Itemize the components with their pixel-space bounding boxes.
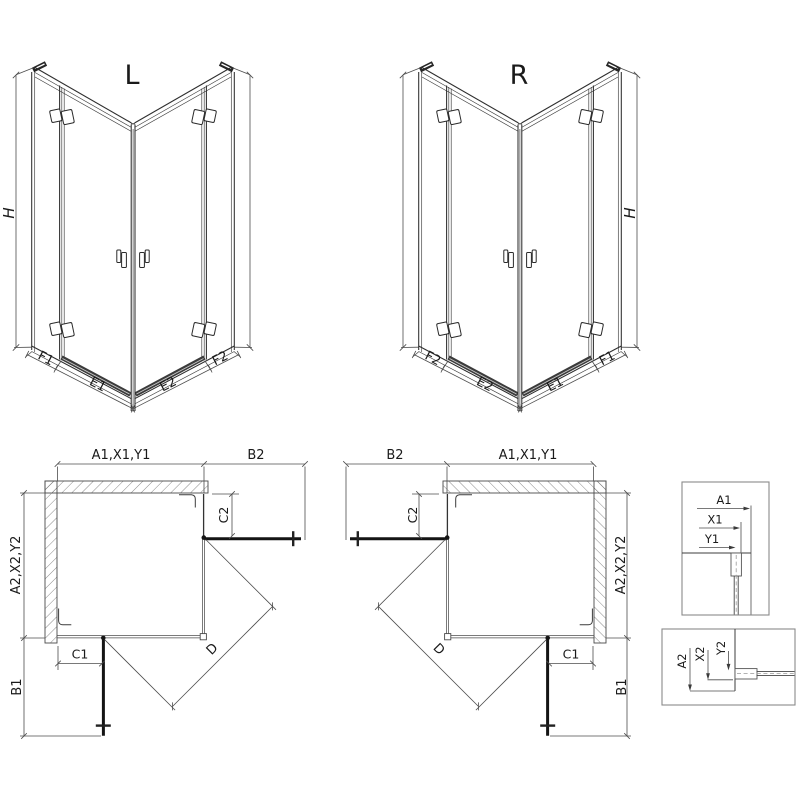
dim-label-c2-right-plan: C2	[405, 507, 420, 524]
dim-label-e2-right: E2	[474, 374, 496, 395]
dim-label-e2-left: E2	[158, 374, 180, 395]
plan-left-geometry	[20, 461, 308, 739]
dim-label-diagonal-right-plan: D	[430, 641, 448, 659]
plan-right-view: B2 A1,X1,Y1 A2,X2,Y2 B1 C2 C1 D	[343, 448, 631, 739]
variant-label-right: R	[510, 60, 529, 91]
diagram-canvas: L H F1 E1 E2 F2 R H F2 E2 E1 F1 A1,X1,Y1…	[0, 0, 800, 800]
dim-label-height-right: H	[621, 207, 639, 218]
variant-label-left: L	[124, 60, 139, 91]
dim-label-e1-left: E1	[87, 374, 109, 395]
detail-box-vertical-profile: A1 X1 Y1	[682, 482, 769, 615]
detail-dim-a1: A1	[716, 493, 731, 507]
detail-dim-x2: X2	[693, 646, 707, 661]
dim-label-width-left-plan: A1,X1,Y1	[92, 448, 151, 463]
detail-box-horizontal-profile: A2 X2 Y2	[662, 629, 795, 705]
dim-label-f2-right: F2	[422, 349, 443, 370]
detail-dim-y2: Y2	[714, 641, 728, 656]
plan-left-view: A1,X1,Y1 B2 A2,X2,Y2 B1 C2 C1 D	[9, 448, 308, 739]
detail-dim-a2: A2	[675, 653, 689, 668]
dim-label-depth-left-plan: A2,X2,Y2	[9, 536, 24, 595]
detail-dim-y1: Y1	[704, 532, 719, 546]
diagram-page: L H F1 E1 E2 F2 R H F2 E2 E1 F1 A1,X1,Y1…	[0, 0, 800, 800]
dim-label-depth-right-plan: A2,X2,Y2	[614, 536, 629, 595]
dim-label-height-left: H	[0, 207, 18, 218]
dim-label-b1-left-plan: B1	[10, 678, 25, 695]
detail-dim-x1: X1	[707, 513, 722, 527]
dim-label-e1-right: E1	[545, 374, 567, 395]
dim-label-f2-left: F2	[210, 349, 231, 370]
dim-label-c1-left-plan: C1	[72, 647, 89, 662]
elevation-right-view: R H F2 E2 E1 F1	[400, 60, 640, 412]
dim-label-b2-right-plan: B2	[386, 448, 403, 463]
dim-label-c2-left-plan: C2	[216, 507, 231, 524]
dim-label-c1-right-plan: C1	[563, 647, 580, 662]
dim-label-f1-right: F1	[597, 349, 618, 370]
dim-label-f1-left: F1	[35, 349, 56, 370]
dim-label-b1-right-plan: B1	[615, 678, 630, 695]
dim-label-diagonal-left-plan: D	[204, 641, 222, 659]
elevation-left-view: L H F1 E1 E2 F2	[0, 60, 253, 412]
dim-label-width-right-plan: A1,X1,Y1	[499, 448, 558, 463]
dim-label-b2-left-plan: B2	[247, 448, 264, 463]
plan-right-geometry	[343, 461, 631, 739]
